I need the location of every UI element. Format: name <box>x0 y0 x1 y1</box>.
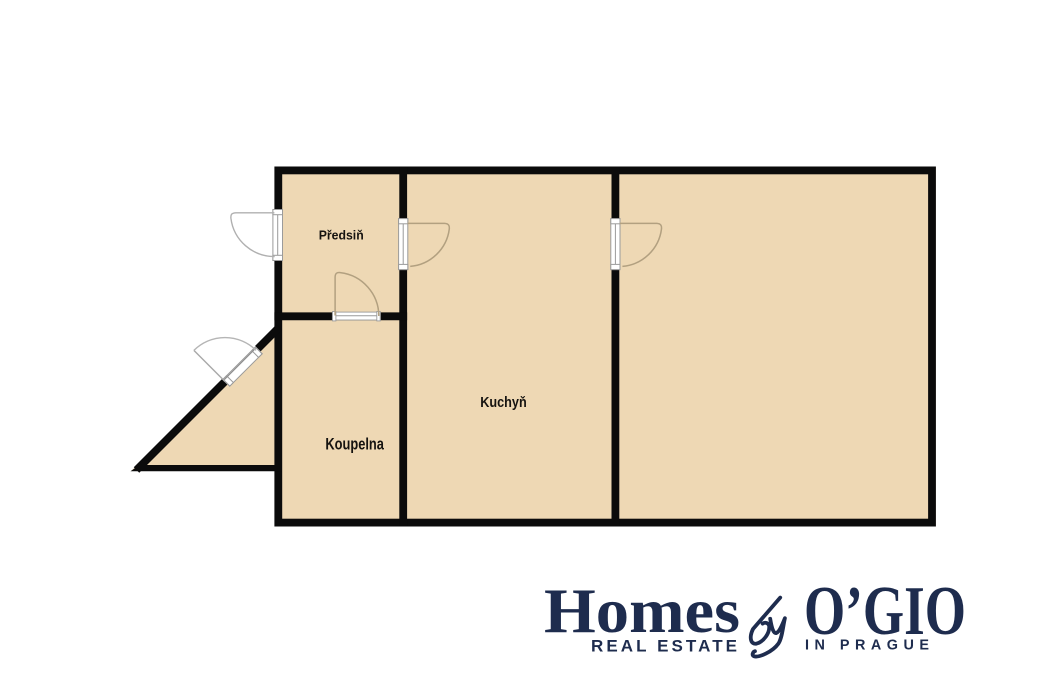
svg-text:REAL ESTATE: REAL ESTATE <box>591 637 737 656</box>
svg-text:Homes: Homes <box>544 576 740 646</box>
svg-text:O’GIO: O’GIO <box>804 573 966 650</box>
